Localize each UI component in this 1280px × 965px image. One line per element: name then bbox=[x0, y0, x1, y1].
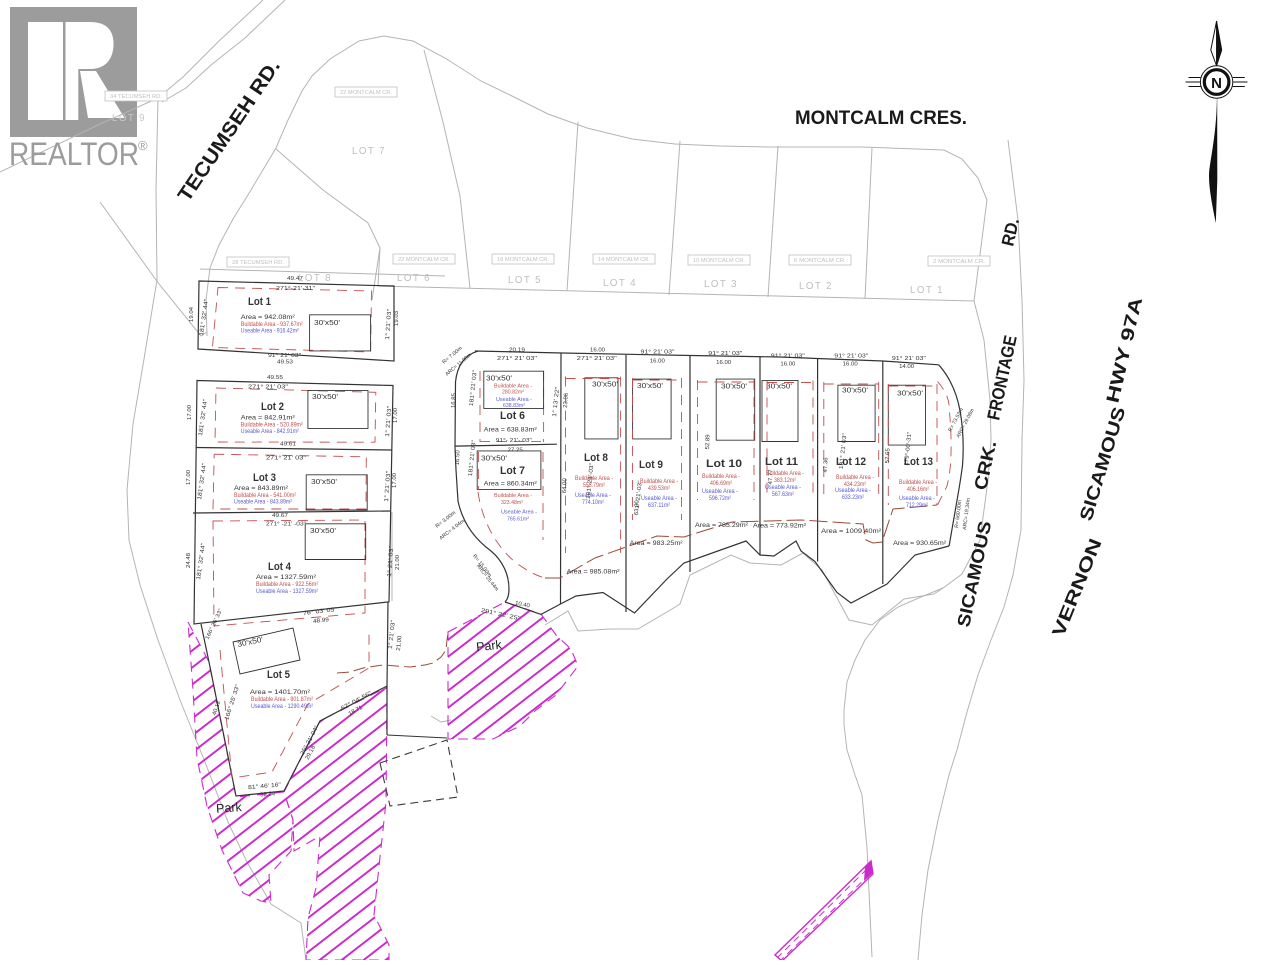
svg-text:34 TECUMSEH RD.: 34 TECUMSEH RD. bbox=[110, 94, 162, 100]
svg-text:LOT 8: LOT 8 bbox=[298, 273, 332, 284]
svg-text:Useable Area -: Useable Area - bbox=[835, 488, 871, 494]
svg-text:271°-21'-31": 271°-21'-31" bbox=[276, 286, 315, 292]
svg-text:91° 21' 03": 91° 21' 03" bbox=[641, 350, 675, 356]
svg-text:23.86: 23.86 bbox=[563, 393, 570, 408]
svg-text:Area = 1327.59m²: Area = 1327.59m² bbox=[256, 574, 317, 581]
svg-text:Useable Area -: Useable Area - bbox=[501, 510, 537, 516]
svg-text:637.11m²: 637.11m² bbox=[648, 503, 670, 509]
svg-text:52.89: 52.89 bbox=[705, 434, 712, 449]
svg-text:®: ® bbox=[138, 138, 148, 153]
svg-text:30'x50': 30'x50' bbox=[311, 477, 338, 486]
svg-text:14 MONTCALM CR.: 14 MONTCALM CR. bbox=[598, 257, 650, 263]
svg-text:20.19: 20.19 bbox=[509, 348, 525, 354]
svg-text:49.53: 49.53 bbox=[277, 360, 293, 366]
svg-text:406.69m²: 406.69m² bbox=[710, 481, 732, 487]
svg-text:Lot 5: Lot 5 bbox=[267, 669, 290, 681]
svg-text:LOT 5: LOT 5 bbox=[508, 275, 542, 286]
svg-text:19.04: 19.04 bbox=[189, 306, 195, 322]
svg-text:Lot 7: Lot 7 bbox=[500, 465, 525, 477]
svg-text:LOT 4: LOT 4 bbox=[603, 278, 637, 289]
svg-text:49.55: 49.55 bbox=[267, 375, 283, 381]
svg-text:16.00: 16.00 bbox=[590, 348, 605, 354]
svg-text:271° 21' 03": 271° 21' 03" bbox=[577, 356, 617, 362]
svg-text:Area = 843.89m²: Area = 843.89m² bbox=[234, 485, 289, 492]
svg-text:24.48: 24.48 bbox=[186, 553, 192, 568]
svg-text:14.00: 14.00 bbox=[899, 364, 914, 370]
svg-text:567.63m²: 567.63m² bbox=[772, 492, 794, 498]
svg-text:Useable Area -: Useable Area - bbox=[899, 496, 935, 502]
svg-text:Buildable Area -: Buildable Area - bbox=[702, 474, 740, 480]
svg-text:16.00: 16.00 bbox=[780, 362, 795, 368]
svg-text:Park: Park bbox=[216, 800, 243, 816]
svg-text:49.67: 49.67 bbox=[272, 513, 288, 519]
svg-text:Area = 942.08m²: Area = 942.08m² bbox=[241, 314, 296, 321]
svg-text:LOT 3: LOT 3 bbox=[704, 279, 738, 290]
svg-text:Useable Area - 843.89m²: Useable Area - 843.89m² bbox=[234, 499, 292, 505]
svg-text:Lot 10: Lot 10 bbox=[706, 458, 742, 470]
svg-text:Buildable Area - 937.67m²: Buildable Area - 937.67m² bbox=[241, 322, 303, 328]
svg-text:18 MONTCALM CR.: 18 MONTCALM CR. bbox=[497, 257, 549, 263]
svg-text:Useable Area -: Useable Area - bbox=[641, 496, 677, 502]
svg-text:Buildable Area - 541.00m²: Buildable Area - 541.00m² bbox=[234, 493, 296, 499]
svg-text:LOT 6: LOT 6 bbox=[397, 273, 431, 284]
svg-text:Useable Area -: Useable Area - bbox=[765, 485, 801, 491]
svg-text:Lot 3: Lot 3 bbox=[253, 472, 276, 484]
svg-text:2 MONTCALM CR.: 2 MONTCALM CR. bbox=[933, 259, 985, 265]
svg-text:Lot 11: Lot 11 bbox=[765, 456, 798, 468]
svg-text:Useable Area -: Useable Area - bbox=[496, 397, 532, 403]
svg-text:30'x50': 30'x50' bbox=[637, 381, 664, 390]
svg-text:LOT 1: LOT 1 bbox=[910, 285, 944, 296]
svg-text:91° 21' 03": 91° 21' 03" bbox=[268, 353, 301, 359]
svg-text:280.82m²: 280.82m² bbox=[502, 390, 524, 396]
svg-text:Buildable Area - 801.87m²: Buildable Area - 801.87m² bbox=[251, 697, 313, 703]
svg-text:Area = 785.29m²: Area = 785.29m² bbox=[695, 522, 749, 529]
svg-text:21.00: 21.00 bbox=[395, 555, 401, 570]
svg-text:10 MONTCALM CR.: 10 MONTCALM CR. bbox=[693, 258, 745, 264]
svg-text:17.00: 17.00 bbox=[186, 470, 192, 485]
svg-text:271° -21' -03": 271° -21' -03" bbox=[266, 522, 306, 528]
svg-text:Buildable Area -: Buildable Area - bbox=[640, 479, 678, 485]
svg-text:22 MONTCALM CR.: 22 MONTCALM CR. bbox=[340, 90, 392, 96]
svg-text:Useable Area - 842.91m²: Useable Area - 842.91m² bbox=[241, 429, 299, 435]
svg-text:Area = 773.92m²: Area = 773.92m² bbox=[753, 523, 807, 530]
svg-text:63.30: 63.30 bbox=[634, 500, 641, 515]
svg-text:Area = 638.83m²: Area = 638.83m² bbox=[484, 427, 538, 434]
svg-text:16.00: 16.00 bbox=[716, 360, 731, 366]
svg-text:Buildable Area - 520.89m²: Buildable Area - 520.89m² bbox=[241, 422, 303, 428]
svg-text:6 MONTCALM CR.: 6 MONTCALM CR. bbox=[794, 258, 846, 264]
svg-text:49.47: 49.47 bbox=[287, 276, 303, 282]
svg-text:Useable Area - 1327.59m²: Useable Area - 1327.59m² bbox=[256, 589, 318, 595]
svg-text:633.23m²: 633.23m² bbox=[842, 495, 864, 501]
svg-text:30'x50': 30'x50' bbox=[310, 526, 337, 535]
svg-text:91° 21' 03": 91° 21' 03" bbox=[892, 356, 926, 362]
svg-text:Lot 4: Lot 4 bbox=[268, 561, 292, 573]
svg-text:30'x50': 30'x50' bbox=[842, 386, 869, 395]
svg-text:Buildable Area -: Buildable Area - bbox=[899, 480, 937, 486]
svg-text:91° 21' 03": 91° 21' 03" bbox=[771, 354, 805, 360]
svg-text:Lot 1: Lot 1 bbox=[248, 296, 271, 308]
svg-text:91°- 21'- 03": 91°- 21'- 03" bbox=[496, 438, 532, 444]
svg-text:28 TECUMSEH RD.: 28 TECUMSEH RD. bbox=[232, 260, 284, 266]
svg-text:17.00: 17.00 bbox=[392, 473, 398, 488]
svg-text:406.16m²: 406.16m² bbox=[907, 487, 929, 493]
svg-text:Useable Area - 1290.49m²: Useable Area - 1290.49m² bbox=[251, 704, 313, 710]
svg-text:16.00: 16.00 bbox=[843, 362, 858, 368]
svg-text:16.00: 16.00 bbox=[650, 359, 665, 365]
svg-text:Useable Area -: Useable Area - bbox=[575, 493, 611, 499]
svg-text:16.50: 16.50 bbox=[455, 450, 462, 465]
svg-text:57.65: 57.65 bbox=[885, 448, 892, 463]
svg-text:638.83m²: 638.83m² bbox=[503, 403, 525, 409]
svg-text:22 MONTCALM CR.: 22 MONTCALM CR. bbox=[398, 257, 450, 263]
svg-text:64.00: 64.00 bbox=[562, 478, 569, 493]
svg-text:323.48m²: 323.48m² bbox=[501, 500, 523, 506]
svg-text:Park: Park bbox=[475, 638, 503, 655]
svg-text:Useable Area - 916.42m²: Useable Area - 916.42m² bbox=[241, 328, 299, 334]
svg-text:Useable Area -: Useable Area - bbox=[702, 489, 738, 495]
svg-text:49.61: 49.61 bbox=[280, 442, 296, 448]
svg-text:Lot 8: Lot 8 bbox=[584, 452, 608, 464]
svg-text:17.00: 17.00 bbox=[187, 405, 193, 420]
svg-text:271° 21' 03": 271° 21' 03" bbox=[497, 356, 537, 362]
svg-text:Area = 842.91m²: Area = 842.91m² bbox=[241, 415, 296, 422]
svg-text:271° 21' 03": 271° 21' 03" bbox=[248, 385, 288, 391]
svg-text:30'x50': 30'x50' bbox=[486, 374, 513, 383]
svg-text:383.12m²: 383.12m² bbox=[774, 478, 796, 484]
svg-text:Area = 985.08m²: Area = 985.08m² bbox=[567, 569, 621, 576]
svg-text:439.53m²: 439.53m² bbox=[648, 486, 670, 492]
svg-text:N: N bbox=[1211, 75, 1222, 92]
svg-text:LOT 9: LOT 9 bbox=[112, 113, 146, 124]
svg-text:774.10m²: 774.10m² bbox=[582, 500, 604, 506]
svg-text:Lot 9: Lot 9 bbox=[639, 459, 663, 471]
svg-text:712.29m²: 712.29m² bbox=[906, 503, 928, 509]
svg-text:Lot 2: Lot 2 bbox=[261, 401, 284, 413]
svg-text:Buildable Area -: Buildable Area - bbox=[494, 493, 532, 499]
svg-text:Buildable Area - 922.56m²: Buildable Area - 922.56m² bbox=[256, 582, 318, 588]
svg-text:17.00: 17.00 bbox=[393, 408, 399, 423]
svg-text:271° 21' 03": 271° 21' 03" bbox=[266, 456, 306, 462]
svg-text:47.36: 47.36 bbox=[823, 457, 830, 472]
svg-text:30'x50': 30'x50' bbox=[481, 454, 508, 463]
svg-text:19.03: 19.03 bbox=[394, 311, 400, 326]
svg-text:91° 21' 03": 91° 21' 03" bbox=[834, 354, 868, 360]
svg-text:30'x50': 30'x50' bbox=[897, 389, 924, 398]
svg-text:REALTOR: REALTOR bbox=[9, 136, 139, 172]
svg-text:Area = 860.34m²: Area = 860.34m² bbox=[484, 481, 538, 488]
svg-text:16.85: 16.85 bbox=[451, 393, 458, 408]
svg-text:Area = 983.25m²: Area = 983.25m² bbox=[630, 540, 684, 547]
svg-text:LOT 7: LOT 7 bbox=[352, 146, 386, 157]
svg-text:91° 21' 03": 91° 21' 03" bbox=[708, 351, 742, 357]
svg-text:30'x50': 30'x50' bbox=[592, 380, 619, 389]
svg-text:MONTCALM CRES.: MONTCALM CRES. bbox=[795, 108, 967, 129]
svg-text:765.61m²: 765.61m² bbox=[507, 517, 529, 523]
svg-text:Lot 6: Lot 6 bbox=[500, 410, 525, 422]
svg-text:596.72m²: 596.72m² bbox=[709, 496, 731, 502]
svg-text:Area = 1401.70m²: Area = 1401.70m² bbox=[250, 689, 311, 696]
svg-text:Buildable Area -: Buildable Area - bbox=[836, 475, 874, 481]
svg-text:30'x50': 30'x50' bbox=[314, 318, 341, 327]
svg-text:LOT 2: LOT 2 bbox=[799, 281, 833, 292]
svg-text:30'x50': 30'x50' bbox=[721, 382, 748, 391]
svg-text:Area = 930.65m²: Area = 930.65m² bbox=[893, 540, 947, 547]
svg-text:30'x50': 30'x50' bbox=[312, 392, 339, 401]
svg-text:47.77: 47.77 bbox=[768, 469, 775, 484]
svg-text:Area = 1009.40m²: Area = 1009.40m² bbox=[821, 528, 882, 535]
